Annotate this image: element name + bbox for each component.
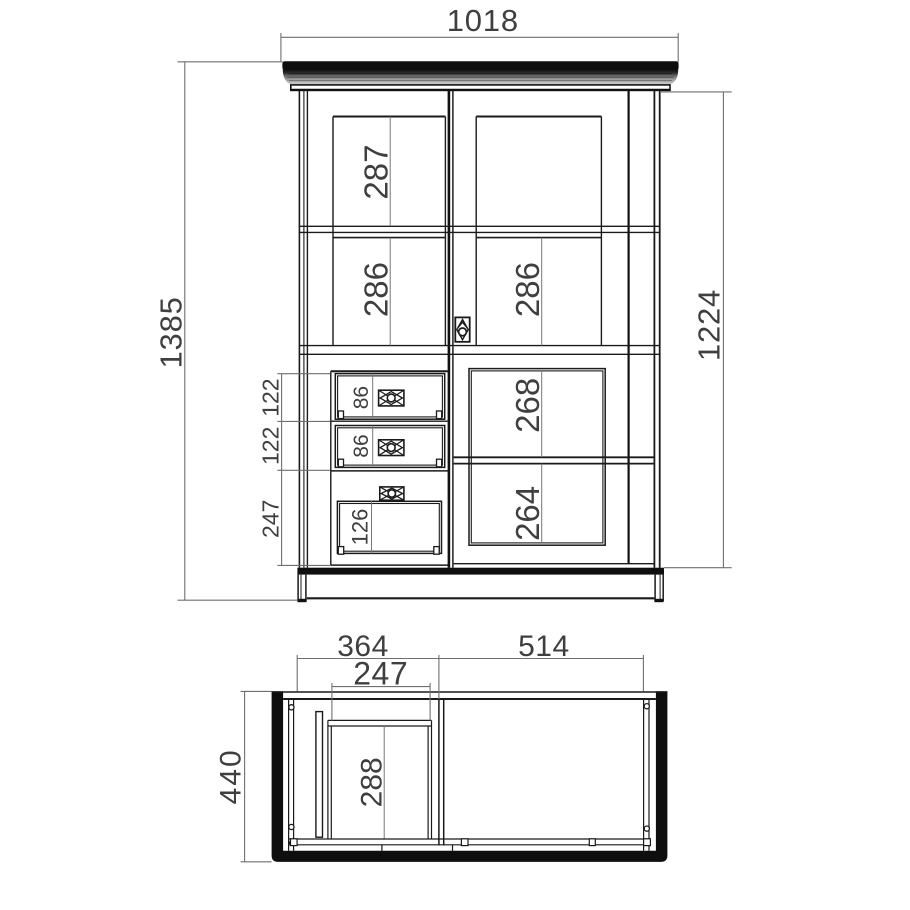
svg-text:287: 287 [357, 145, 394, 200]
svg-text:286: 286 [509, 262, 546, 317]
svg-text:1385: 1385 [153, 296, 188, 368]
svg-text:86: 86 [350, 386, 373, 409]
svg-text:126: 126 [347, 509, 372, 546]
svg-text:247: 247 [353, 656, 408, 692]
svg-text:268: 268 [509, 378, 546, 433]
svg-text:514: 514 [518, 630, 570, 663]
svg-text:288: 288 [355, 757, 388, 807]
svg-text:122: 122 [258, 378, 284, 416]
svg-text:122: 122 [258, 427, 284, 465]
svg-text:440: 440 [214, 748, 247, 804]
svg-text:247: 247 [258, 500, 284, 538]
svg-text:86: 86 [350, 434, 373, 457]
svg-text:1224: 1224 [692, 289, 727, 361]
svg-text:286: 286 [357, 262, 394, 317]
svg-text:1018: 1018 [447, 3, 519, 38]
svg-text:264: 264 [509, 486, 546, 541]
